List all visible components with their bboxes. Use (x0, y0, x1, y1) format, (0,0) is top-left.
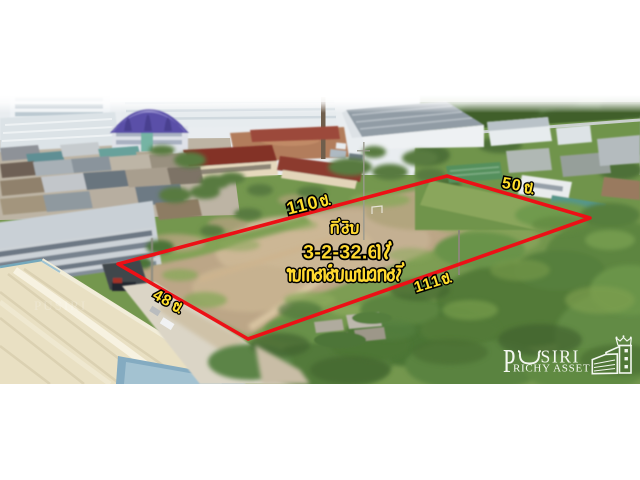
svg-text:P: P (503, 342, 515, 380)
svg-text:PUSIRI: PUSIRI (34, 298, 87, 313)
svg-text:50: 50 (501, 175, 523, 195)
svg-text:RICHY ASSET: RICHY ASSET (513, 363, 590, 375)
svg-text:3-2-32.6: 3-2-32.6 (303, 242, 379, 264)
